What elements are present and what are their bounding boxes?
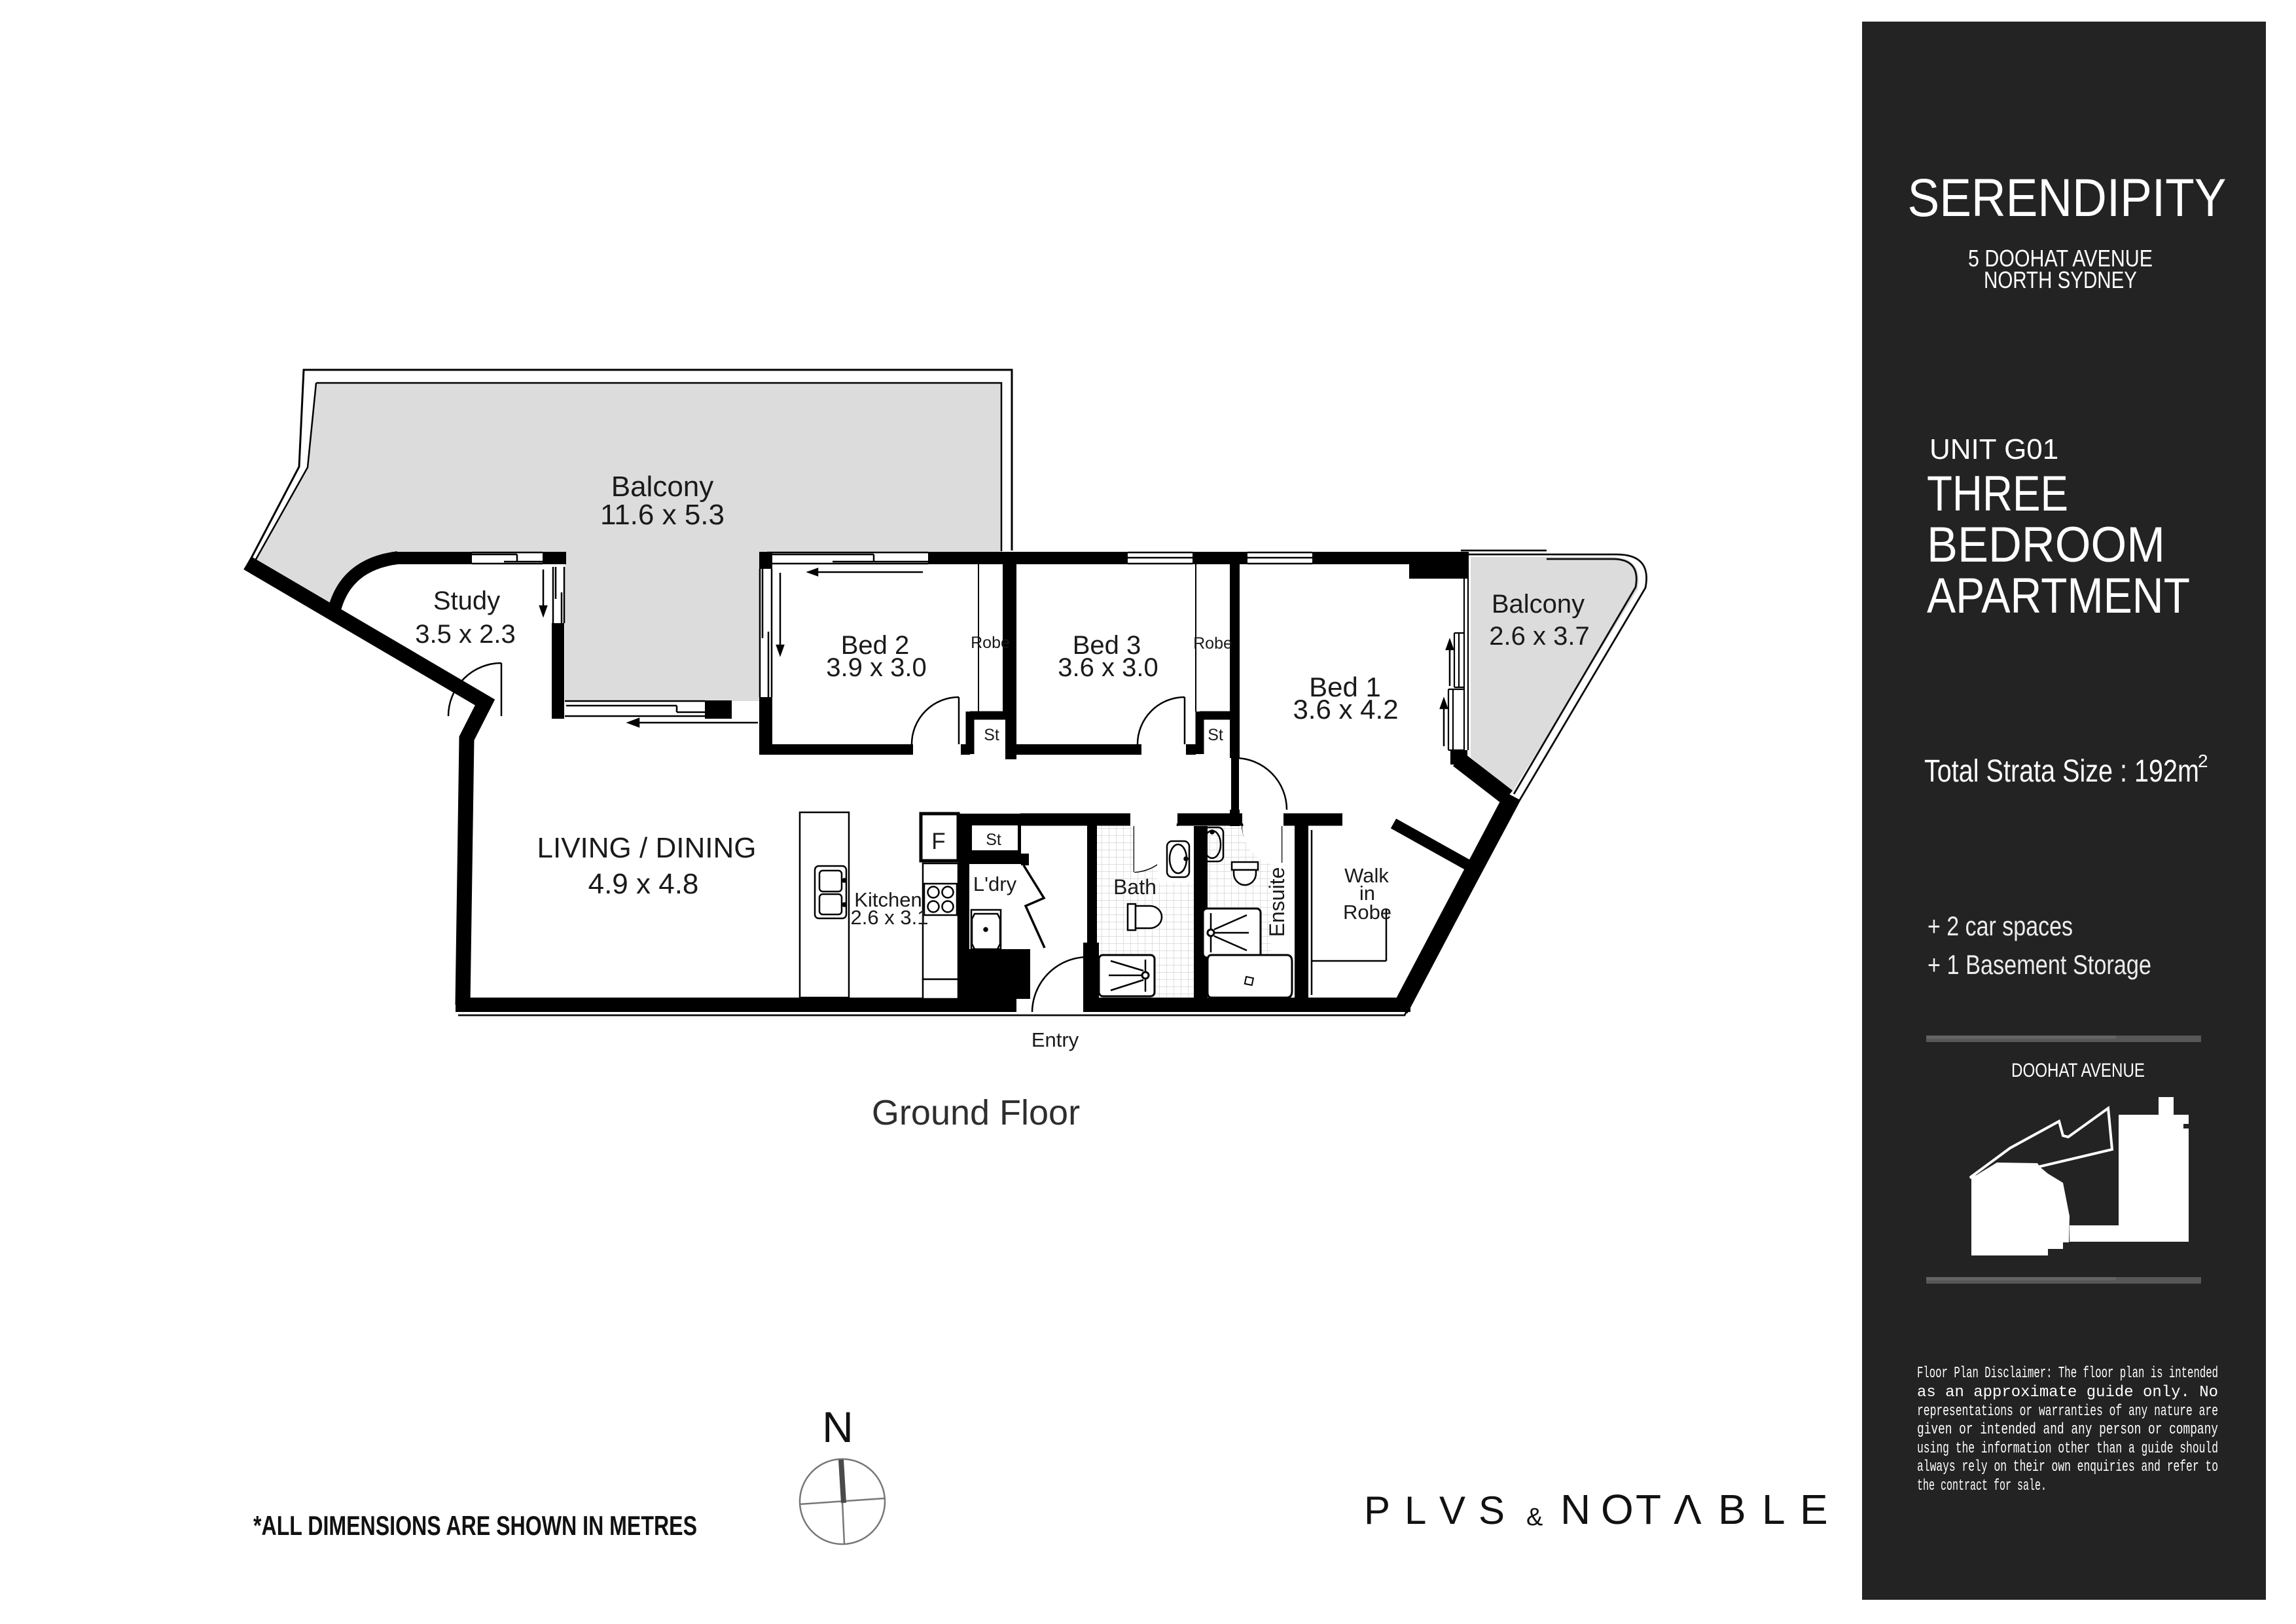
svg-text:P: P [1364, 1489, 1390, 1532]
svg-text:Balcony: Balcony [611, 471, 714, 503]
svg-text:2: 2 [2198, 751, 2208, 771]
svg-text:Entry: Entry [1031, 1028, 1079, 1051]
svg-text:+ 2 car spaces: + 2 car spaces [1928, 911, 2073, 941]
svg-text:Ensuite: Ensuite [1265, 867, 1289, 937]
svg-text:2.6 x 3.7: 2.6 x 3.7 [1489, 622, 1589, 651]
svg-text:Ground Floor: Ground Floor [872, 1093, 1080, 1132]
svg-text:V: V [1439, 1489, 1465, 1532]
svg-text:using the information other th: using the information other than a guide… [1917, 1440, 2218, 1458]
svg-text:L'dry: L'dry [973, 873, 1017, 895]
svg-text:NORTH SYDNEY: NORTH SYDNEY [1984, 266, 2137, 293]
svg-text:3.5 x 2.3: 3.5 x 2.3 [415, 620, 515, 649]
svg-text:+ 1 Basement Storage: + 1 Basement Storage [1928, 949, 2151, 980]
svg-text:Robe: Robe [1343, 901, 1391, 924]
svg-text:Floor Plan Disclaimer: The flo: Floor Plan Disclaimer: The floor plan is… [1917, 1365, 2218, 1382]
svg-text:BEDROOM: BEDROOM [1927, 517, 2165, 573]
svg-text:St: St [1208, 726, 1223, 744]
svg-text:3.6 x 4.2: 3.6 x 4.2 [1293, 694, 1398, 725]
svg-text:always rely on their own enqui: always rely on their own enquiries and r… [1917, 1458, 2218, 1476]
svg-text:Total Strata Size : 192m: Total Strata Size : 192m [1924, 754, 2199, 789]
svg-text:O: O [1601, 1486, 1634, 1533]
svg-text:Balcony: Balcony [1492, 590, 1585, 619]
svg-text:representations or warranties: representations or warranties of any nat… [1917, 1403, 2218, 1420]
svg-text:T: T [1636, 1486, 1661, 1533]
svg-text:Robe: Robe [1193, 634, 1232, 653]
svg-text:St: St [986, 831, 1001, 849]
svg-text:St: St [984, 726, 999, 744]
svg-text:S: S [1479, 1489, 1505, 1532]
svg-text:UNIT G01: UNIT G01 [1929, 433, 2058, 465]
svg-text:LIVING / DINING: LIVING / DINING [537, 832, 757, 864]
svg-text:3.9 x 3.0: 3.9 x 3.0 [826, 653, 926, 682]
svg-text:L: L [1762, 1486, 1785, 1533]
svg-text:the contract for sale.: the contract for sale. [1917, 1477, 2047, 1495]
svg-text:THREE: THREE [1927, 466, 2068, 522]
svg-text:APARTMENT: APARTMENT [1927, 568, 2190, 624]
svg-text:3.6 x 3.0: 3.6 x 3.0 [1058, 653, 1158, 682]
svg-text:&: & [1526, 1504, 1543, 1531]
svg-text:as an approximate guide only.: as an approximate guide only. No [1917, 1384, 2218, 1401]
svg-text:2.6 x 3.1: 2.6 x 3.1 [851, 906, 929, 929]
svg-text:N: N [1560, 1486, 1590, 1533]
svg-text:given or intended and any pers: given or intended and any person or comp… [1917, 1421, 2218, 1439]
svg-text:E: E [1800, 1486, 1828, 1533]
svg-text:SERENDIPITY: SERENDIPITY [1908, 168, 2227, 228]
svg-text:11.6 x 5.3: 11.6 x 5.3 [600, 499, 725, 531]
svg-text:Study: Study [433, 586, 500, 615]
svg-text:Bath: Bath [1113, 875, 1157, 899]
svg-text:N: N [822, 1403, 853, 1451]
svg-text:Λ: Λ [1674, 1486, 1702, 1533]
svg-text:B: B [1718, 1486, 1746, 1533]
svg-text:L: L [1405, 1489, 1426, 1532]
svg-text:F: F [931, 829, 945, 854]
svg-text:*ALL DIMENSIONS ARE SHOWN IN M: *ALL DIMENSIONS ARE SHOWN IN METRES [253, 1510, 697, 1541]
svg-text:DOOHAT AVENUE: DOOHAT AVENUE [2011, 1060, 2145, 1081]
svg-text:Robe: Robe [971, 634, 1010, 652]
svg-text:4.9 x 4.8: 4.9 x 4.8 [588, 868, 699, 900]
